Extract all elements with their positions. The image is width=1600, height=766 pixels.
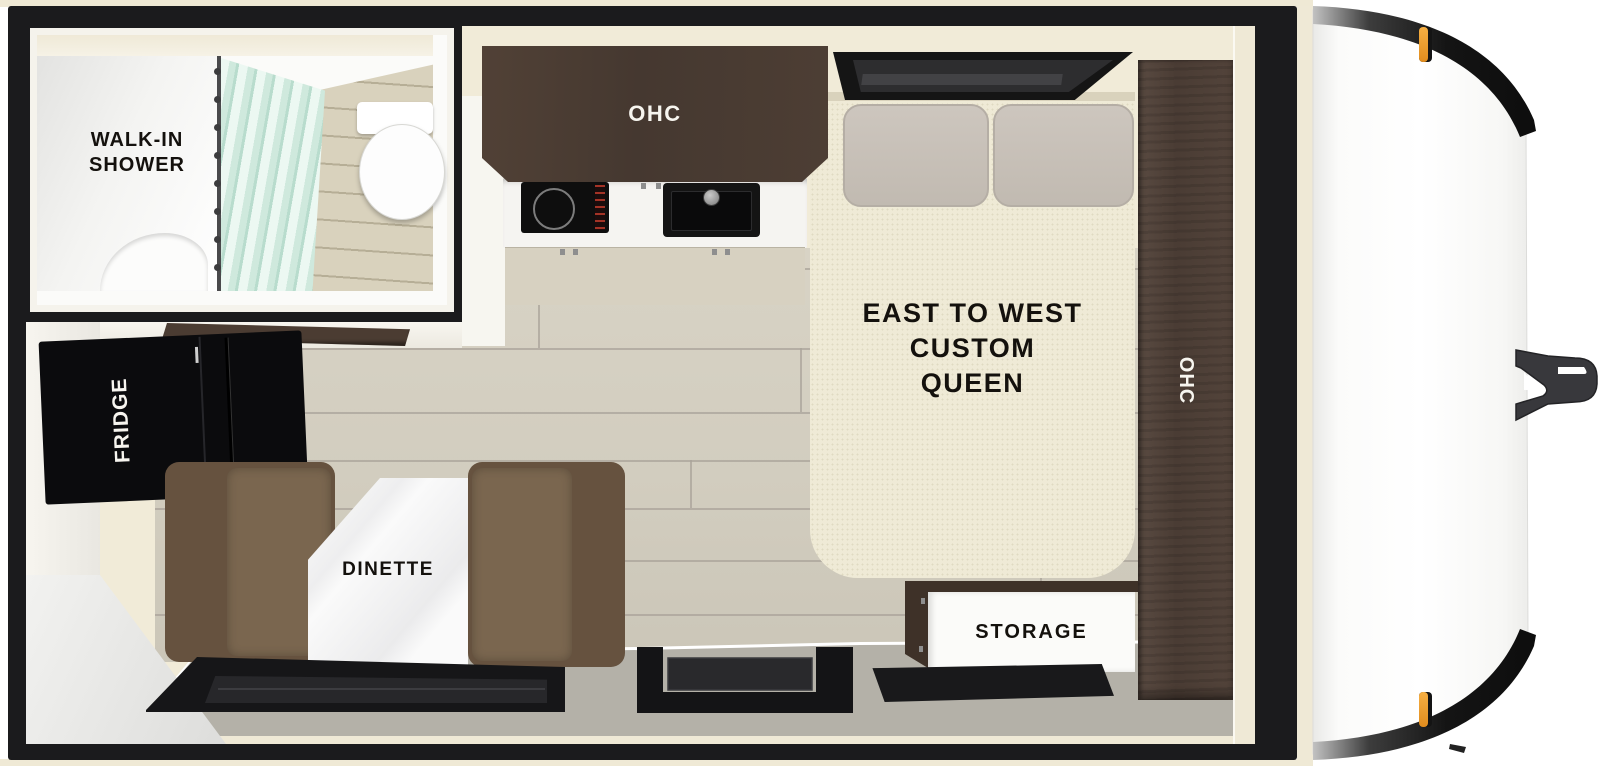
bedroom-window-frame-stripe [861,74,1063,85]
storage-hinge [921,598,925,604]
cooktop [521,182,609,233]
curtain-ring [214,180,221,187]
kitchen-sink [663,183,760,237]
storage-compartment: STORAGE [928,592,1135,672]
dinette-window-divider [218,688,545,690]
floorplan-page: WALK-IN SHOWER EAST TO WEST CUSTOM QUEEN [0,0,1600,766]
curtain-ring [214,96,221,103]
curtain-ring [214,68,221,75]
curtain-ring [214,208,221,215]
marker-light-top [1419,27,1432,62]
cooktop-burner [533,188,575,230]
sink-faucet [703,189,720,206]
shower-curtain-rod [217,56,221,291]
bathroom-ceiling-band [37,35,433,56]
cooktop-controls [595,185,605,230]
cap-trim-joint [1449,744,1466,753]
walk-in-shower-label: WALK-IN SHOWER [57,128,217,178]
cabinet-hinge [656,183,661,189]
plank-joint [800,348,802,412]
walk-in-shower-label-line1: WALK-IN [57,128,217,153]
fridge-label: FRIDGE [108,377,136,463]
front-cap-bottom-trim [1313,629,1536,760]
front-cap-top-trim [1313,6,1536,137]
cabinet-hinge [725,249,730,255]
entry-step-mat [870,664,1114,702]
plank-joint [690,460,692,508]
bed-label: EAST TO WEST CUSTOM QUEEN [812,296,1133,401]
bed-label-line3: QUEEN [812,366,1133,401]
cabinet-hinge [573,249,578,255]
storage-hinge [919,646,923,652]
cabinet-hinge [641,183,646,189]
cabinet-hinge [712,249,717,255]
curtain-ring [214,236,221,243]
tongue-hitch [1516,350,1597,420]
storage-label: STORAGE [975,621,1088,644]
marker-light-bottom [1419,692,1432,727]
front-cap-body [1313,10,1528,754]
kitchen-ohc-label: OHC [628,101,681,127]
rear-interior-wall [1233,26,1255,744]
kitchen-overhead-cabinet: OHC [482,46,828,182]
toilet-bowl [359,124,445,220]
kitchen-base-cabinet [505,247,805,305]
curtain-ring [214,152,221,159]
wardrobe-ohc-label: OHC [1174,356,1197,403]
bed-label-line2: CUSTOM [812,331,1133,366]
bedroom-wardrobe-cabinet: OHC [1138,60,1233,700]
bench-seat-cushion [472,468,572,661]
curtain-ring [214,124,221,131]
fridge-handle [195,347,199,363]
front-sidewall-trim [1297,6,1315,760]
bottom-edge-strip [0,759,1313,766]
curtain-ring [214,264,221,271]
dinette-bench-right [468,462,625,667]
bed-label-line1: EAST TO WEST [812,296,1133,331]
shower-curtain [221,58,325,291]
walk-in-shower-label-line2: SHOWER [57,153,217,178]
pillow-right [993,104,1134,207]
cabinet-hinge [560,249,565,255]
dinette-label: DINETTE [342,559,434,581]
pillow-left [843,104,989,207]
